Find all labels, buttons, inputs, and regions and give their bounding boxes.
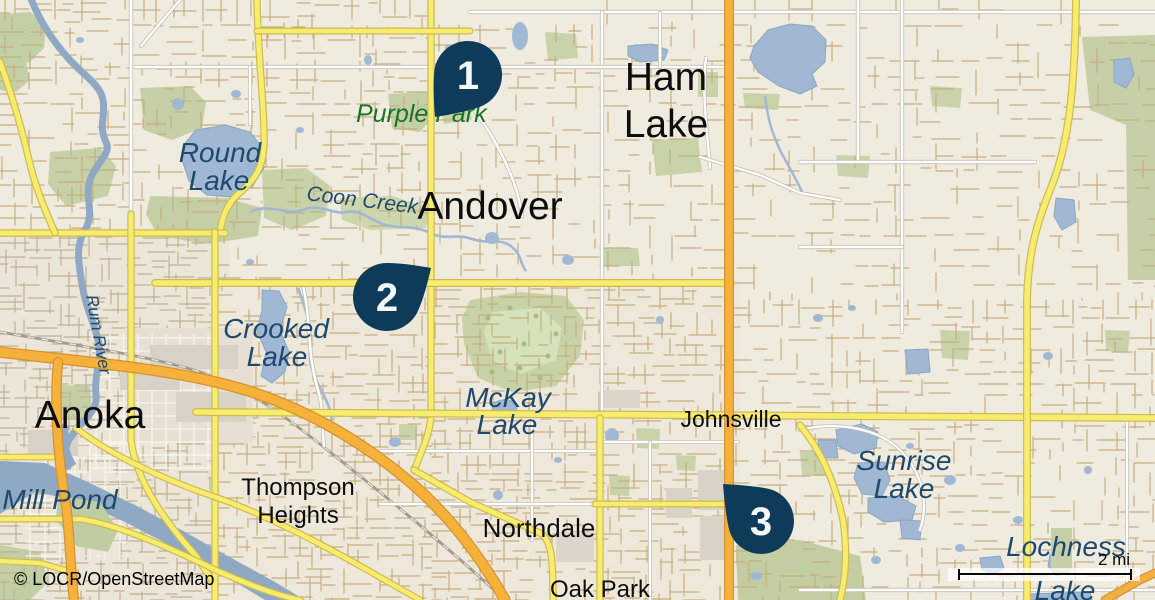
svg-text:Andover: Andover <box>417 185 562 228</box>
svg-text:Lake: Lake <box>874 473 935 504</box>
svg-text:Lake: Lake <box>247 341 308 372</box>
svg-text:Oak Park: Oak Park <box>550 576 651 600</box>
svg-text:1: 1 <box>457 54 479 98</box>
svg-text:Mill Pond: Mill Pond <box>2 484 119 515</box>
svg-text:Lake: Lake <box>189 165 250 196</box>
svg-text:Thompson: Thompson <box>241 474 354 501</box>
svg-text:Lake: Lake <box>477 409 538 440</box>
svg-text:© LOCR/OpenStreetMap: © LOCR/OpenStreetMap <box>14 569 214 589</box>
svg-text:3: 3 <box>750 500 772 544</box>
svg-text:Lake: Lake <box>624 103 709 146</box>
svg-text:2 mi: 2 mi <box>1098 550 1130 569</box>
svg-text:Sunrise: Sunrise <box>857 445 952 476</box>
svg-text:Round: Round <box>179 137 263 168</box>
svg-text:Crooked: Crooked <box>223 313 330 344</box>
svg-text:Anoka: Anoka <box>35 394 146 437</box>
svg-text:2: 2 <box>376 276 398 320</box>
svg-text:Ham: Ham <box>625 56 707 99</box>
svg-text:Johnsville: Johnsville <box>681 406 782 432</box>
svg-text:Heights: Heights <box>257 502 338 529</box>
svg-text:Northdale: Northdale <box>483 513 596 543</box>
